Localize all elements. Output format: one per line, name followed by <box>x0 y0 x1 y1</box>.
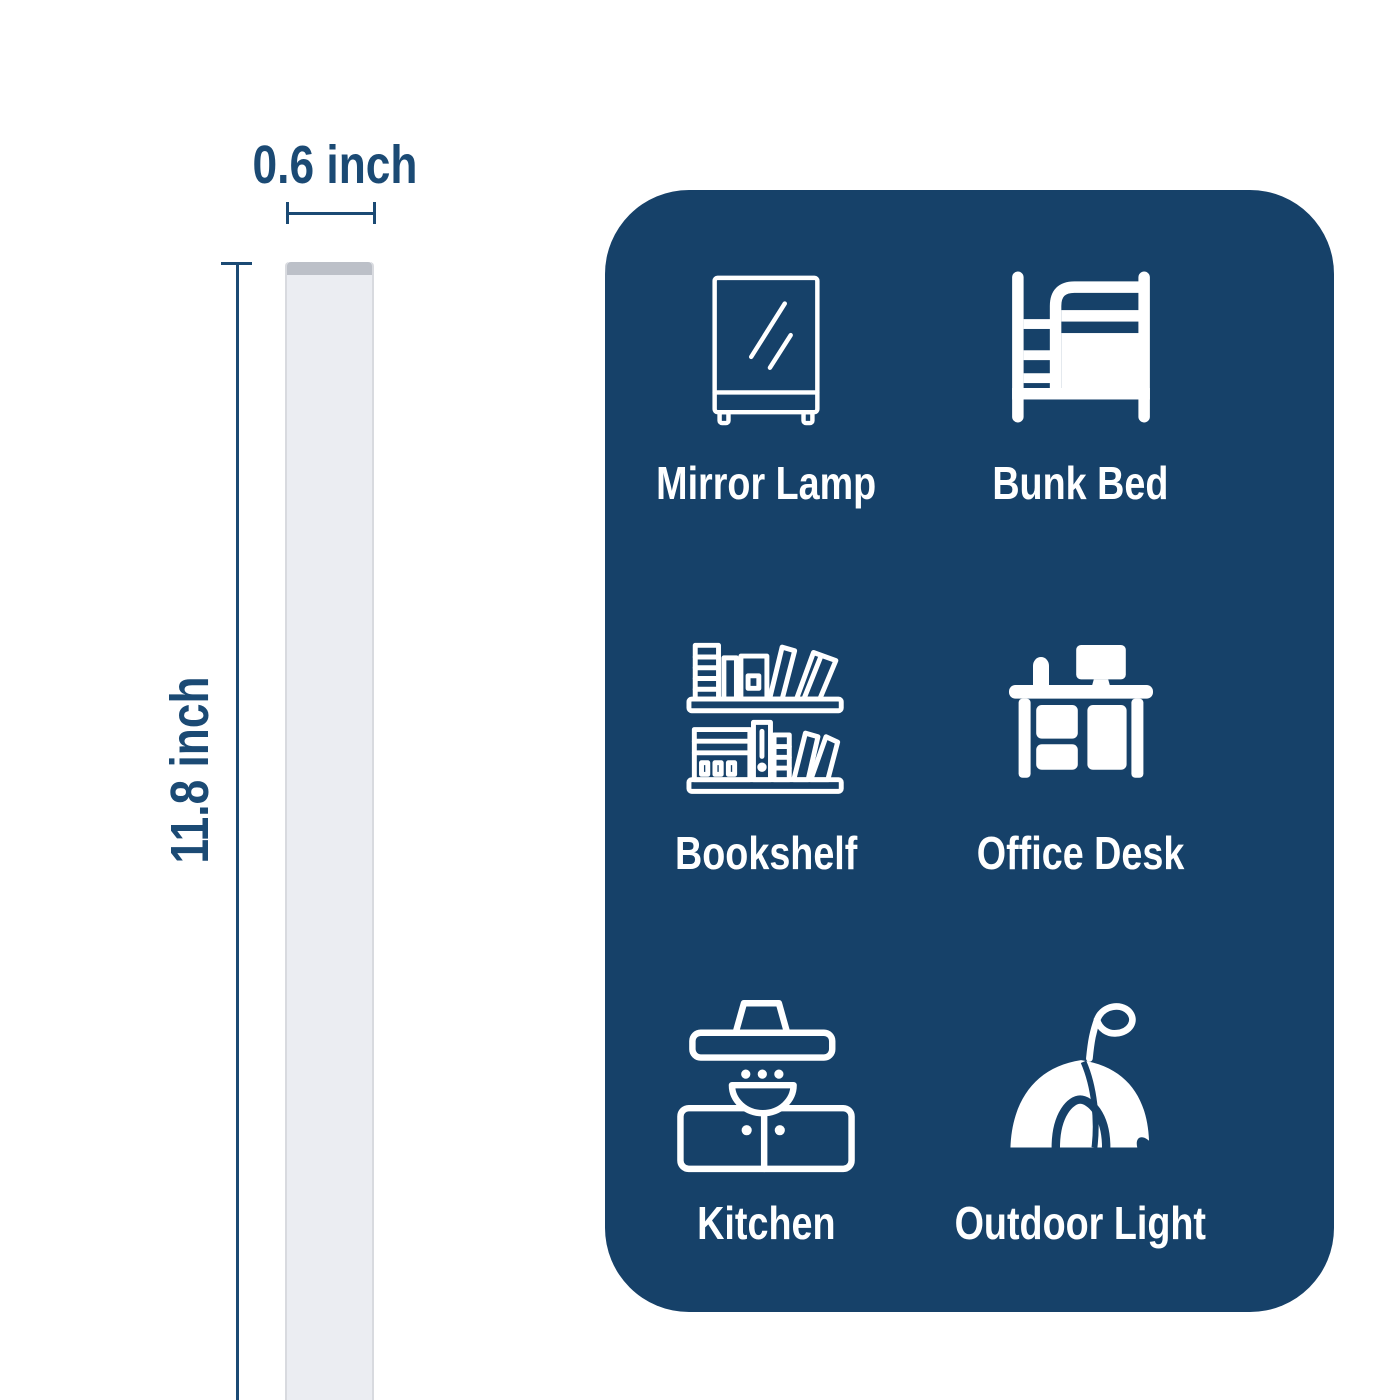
width-dimension-line <box>286 202 376 224</box>
product-light-bar <box>285 262 374 1400</box>
height-dim-rule <box>236 262 239 1400</box>
bunk-bed-icon <box>981 265 1181 430</box>
usage-item-kitchen: Kitchen <box>605 942 927 1312</box>
usage-item-label: Mirror Lamp <box>656 456 876 510</box>
height-dimension-label: 11.8 inch <box>159 656 221 884</box>
height-dimension-line <box>221 262 252 1400</box>
usage-item-label: Outdoor Light <box>955 1196 1206 1250</box>
usage-panel: Mirror Lamp Bunk Bed <box>605 190 1334 1312</box>
usage-item-bookshelf: Bookshelf <box>605 572 927 942</box>
usage-item-label: Bookshelf <box>675 826 857 880</box>
usage-item-outdoor-light: Outdoor Light <box>927 942 1334 1312</box>
height-dimension-text: 11.8 inch <box>159 676 221 863</box>
outdoor-light-icon <box>981 1005 1181 1170</box>
product-bar-end-cap <box>287 262 372 275</box>
usage-item-mirror-lamp: Mirror Lamp <box>605 202 927 572</box>
width-dimension-label: 0.6 inch <box>234 134 435 196</box>
width-dim-right-tick <box>373 202 376 224</box>
usage-item-label: Kitchen <box>697 1196 835 1250</box>
width-dimension-text: 0.6 inch <box>253 134 418 196</box>
width-dim-rule <box>286 212 376 215</box>
usage-item-label: Office Desk <box>977 826 1185 880</box>
usage-item-bunk-bed: Bunk Bed <box>927 202 1334 572</box>
usage-item-label: Bunk Bed <box>993 456 1169 510</box>
infographic-page: { "dimensions": { "width_label": "0.6 in… <box>0 0 1400 1400</box>
mirror-lamp-icon <box>666 265 866 430</box>
kitchen-icon <box>666 1005 866 1170</box>
bookshelf-icon <box>666 635 866 800</box>
office-desk-icon <box>981 635 1181 800</box>
usage-item-office-desk: Office Desk <box>927 572 1334 942</box>
